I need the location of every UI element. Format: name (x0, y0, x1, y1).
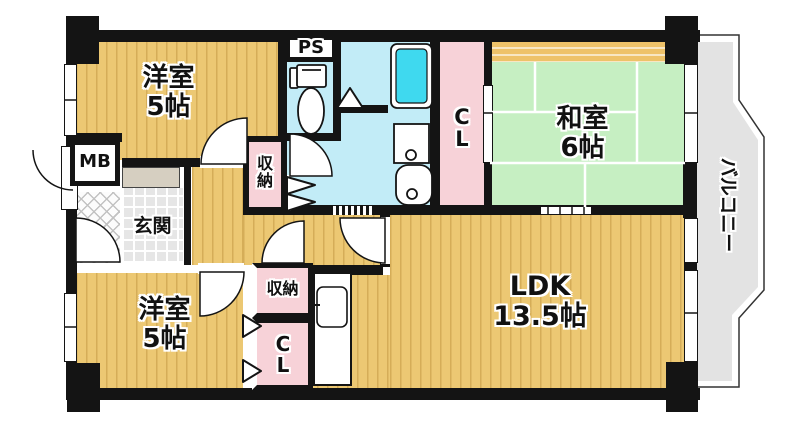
door-gap-ldk (381, 217, 390, 264)
wall-toilet-bottom (285, 133, 336, 141)
wall-bath-bottom (335, 105, 388, 113)
wall-western-top-bottom (122, 158, 202, 167)
wall-middle-horizontal (243, 205, 697, 215)
shoe-cabinet (122, 167, 180, 188)
window-left-top (64, 64, 77, 136)
wall-right-mid (683, 163, 697, 218)
western-room-top-name: 洋室 (106, 64, 231, 93)
pillar-bottom-left (67, 363, 100, 412)
hallway-floor-left (192, 167, 243, 265)
label-western-room-top: 洋室 5帖 (106, 64, 231, 122)
door-gap-western-top (200, 156, 246, 168)
label-storage-top: 収納 (256, 156, 274, 190)
door-gap-western-bottom (198, 263, 244, 274)
floor-plan: 洋室 5帖 PS CL 和室 6帖 バルコニー MB 玄関 収納 洋室 5帖 収… (0, 0, 800, 430)
label-storage-bottom: 収納 (254, 280, 311, 298)
label-ldk: LDK 13.5帖 (450, 272, 630, 332)
sliding-door-closet-japanese (483, 85, 493, 163)
window-japanese-room (684, 64, 698, 163)
label-entrance: 玄関 (122, 216, 183, 237)
pillar-bottom-right (666, 362, 698, 412)
pillar-top-left (66, 16, 99, 64)
window-ldk-upper (684, 218, 698, 263)
japanese-room-name: 和室 (520, 105, 645, 134)
label-balcony: バルコニー (714, 157, 738, 253)
label-western-room-bottom: 洋室 5帖 (102, 296, 227, 354)
sliding-door-japanese-ldk (540, 206, 592, 215)
label-closet-bottom: CL (272, 334, 294, 376)
wall-bottom (66, 388, 700, 400)
pillar-top-right (665, 16, 698, 64)
window-left-bottom (64, 293, 77, 362)
wall-entrance-right (184, 167, 191, 265)
western-room-top-size: 5帖 (106, 93, 231, 122)
label-japanese-room: 和室 6帖 (520, 105, 645, 163)
kitchen-counter (313, 272, 352, 386)
western-room-bottom-name: 洋室 (102, 296, 227, 325)
ldk-size: 13.5帖 (450, 302, 630, 332)
oshiire-band (490, 42, 665, 62)
ldk-name: LDK (450, 272, 630, 302)
western-room-bottom-size: 5帖 (102, 325, 227, 354)
label-closet-top: CL (450, 106, 474, 150)
window-ldk-lower (684, 270, 698, 362)
label-pipe-space: PS (285, 38, 337, 58)
wall-wet-right (430, 30, 440, 215)
washroom-threshold (330, 206, 375, 215)
japanese-room-size: 6帖 (520, 134, 645, 163)
label-meter-box: MB (70, 152, 120, 172)
wet-area-floor (285, 42, 432, 213)
hallway-floor-right (243, 215, 388, 265)
wall-top (66, 30, 700, 42)
